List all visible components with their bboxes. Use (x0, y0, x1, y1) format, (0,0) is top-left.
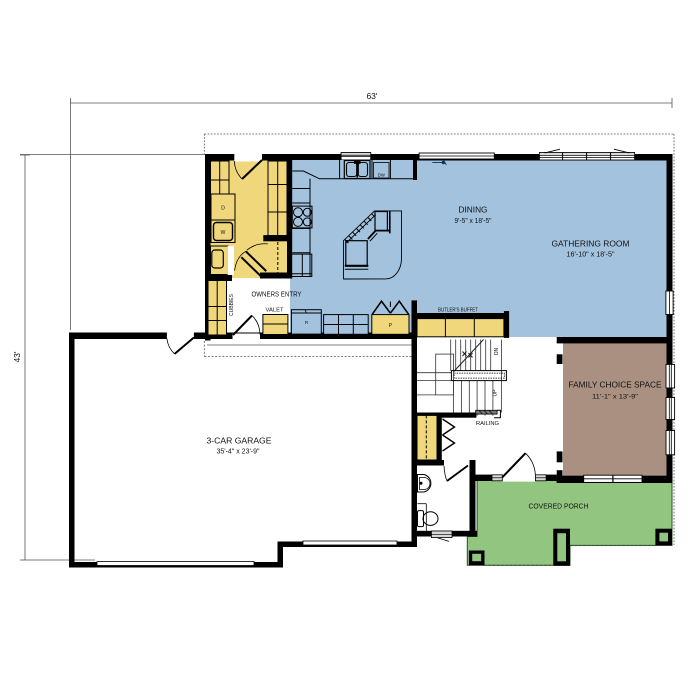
svg-text:16'-10" x 18'-5": 16'-10" x 18'-5" (567, 252, 616, 259)
svg-text:9'-5" x 18'-5": 9'-5" x 18'-5" (455, 218, 492, 225)
svg-text:CUBBIES: CUBBIES (229, 294, 235, 316)
svg-text:GATHERING ROOM: GATHERING ROOM (552, 239, 630, 249)
svg-text:DN: DN (494, 348, 500, 356)
svg-text:BUTLER'S BUFFET: BUTLER'S BUFFET (438, 308, 479, 314)
svg-text:43': 43' (12, 351, 22, 362)
svg-text:35'-4" x 23'-9": 35'-4" x 23'-9" (217, 449, 261, 456)
svg-text:W: W (221, 230, 226, 236)
svg-text:11'-1" x 13'-9": 11'-1" x 13'-9" (592, 394, 639, 401)
svg-text:OWNERS ENTRY: OWNERS ENTRY (252, 290, 302, 299)
svg-text:D: D (221, 206, 225, 212)
svg-text:FAMILY CHOICE SPACE: FAMILY CHOICE SPACE (569, 381, 663, 390)
svg-text:VALET: VALET (266, 308, 285, 314)
svg-text:RAILING: RAILING (476, 421, 499, 427)
svg-text:COVERED PORCH: COVERED PORCH (529, 502, 589, 511)
svg-text:DINING: DINING (459, 205, 488, 215)
svg-text:UP: UP (493, 389, 499, 397)
svg-text:3-CAR GARAGE: 3-CAR GARAGE (207, 436, 272, 446)
svg-text:DW: DW (378, 173, 385, 178)
svg-text:63': 63' (366, 91, 377, 101)
